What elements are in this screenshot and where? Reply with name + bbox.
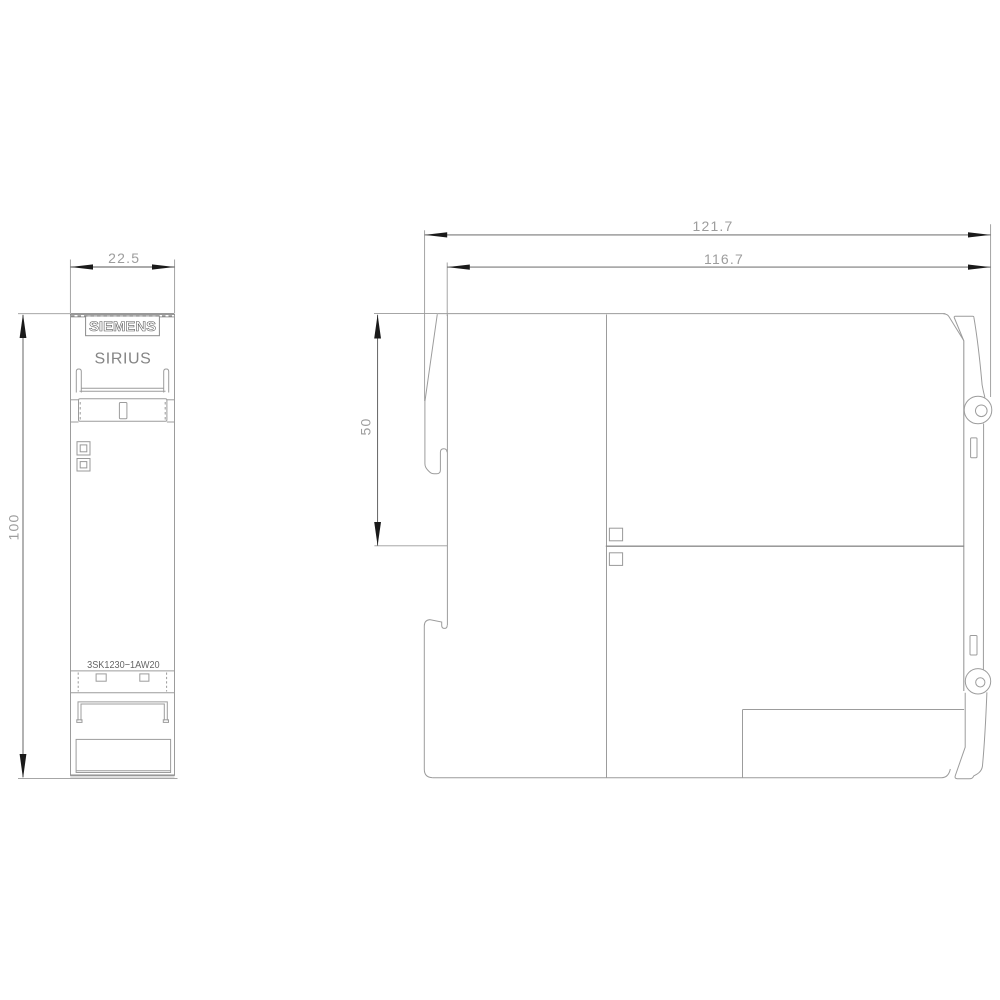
svg-text:50: 50 (358, 418, 374, 436)
svg-text:SIEMENS: SIEMENS (89, 318, 156, 334)
svg-text:100: 100 (6, 514, 22, 541)
svg-text:SIRIUS: SIRIUS (95, 351, 152, 368)
svg-text:121.7: 121.7 (692, 218, 733, 234)
svg-text:116.7: 116.7 (704, 251, 744, 267)
svg-text:3SK1230−1AW20: 3SK1230−1AW20 (87, 659, 160, 671)
svg-text:22.5: 22.5 (108, 250, 140, 266)
